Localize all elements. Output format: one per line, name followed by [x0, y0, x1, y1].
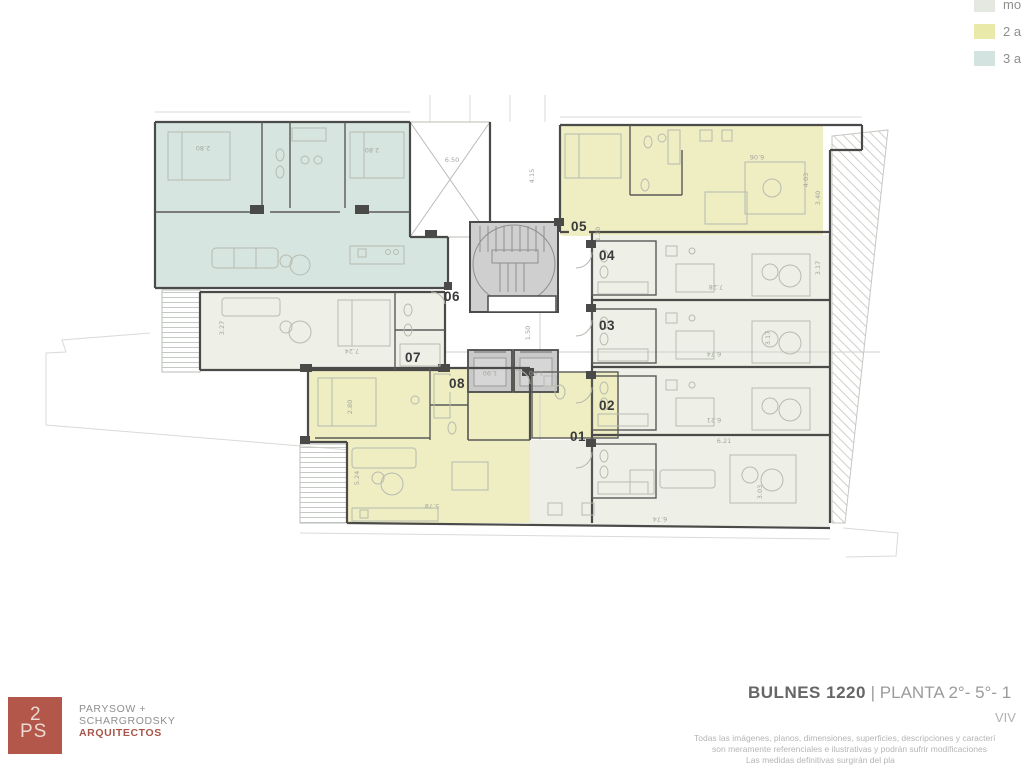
- firm-name: PARYSOW + SCHARGRODSKY ARQUITECTOS: [79, 703, 175, 739]
- logo-text-line2: PS: [20, 723, 62, 740]
- room-fills: [155, 122, 830, 526]
- firm-name-line1: PARYSOW +: [79, 703, 175, 715]
- floor-plan: 01020304050607082.802.806.504.156.064.03…: [0, 0, 1024, 768]
- legend-item: mo: [974, 0, 1021, 12]
- legend-label: mo: [1003, 0, 1021, 12]
- legend-item: 3 a: [974, 51, 1021, 66]
- firm-name-line2: SCHARGRODSKY: [79, 715, 175, 727]
- disclaimer-line3: Las medidas definitivas surgirán del pla: [746, 755, 895, 765]
- floor-plan-drawing: [0, 0, 1024, 768]
- legend-swatch: [974, 0, 995, 12]
- firm-name-line3: ARQUITECTOS: [79, 727, 175, 739]
- air-shaft: [410, 122, 490, 237]
- legend-label: 2 a: [1003, 24, 1021, 39]
- legend-swatch: [974, 24, 995, 39]
- plan-subtitle: VIV: [995, 710, 1016, 725]
- stair-core: [470, 222, 558, 312]
- plan-title-floor: | PLANTA 2°- 5°- 1: [866, 683, 1011, 702]
- firm-logo: 2 PS: [8, 697, 62, 754]
- disclaimer-line2: son meramente referenciales e ilustrativ…: [712, 744, 987, 754]
- disclaimer-line1: Todas las imágenes, planos, dimensiones,…: [694, 733, 995, 743]
- plan-title: BULNES 1220 | PLANTA 2°- 5°- 1: [748, 683, 1011, 703]
- legend-swatch: [974, 51, 995, 66]
- plan-title-project: BULNES 1220: [748, 683, 866, 702]
- legend-item: 2 a: [974, 24, 1021, 39]
- legend-label: 3 a: [1003, 51, 1021, 66]
- legend: mo2 a3 a: [974, 0, 1021, 78]
